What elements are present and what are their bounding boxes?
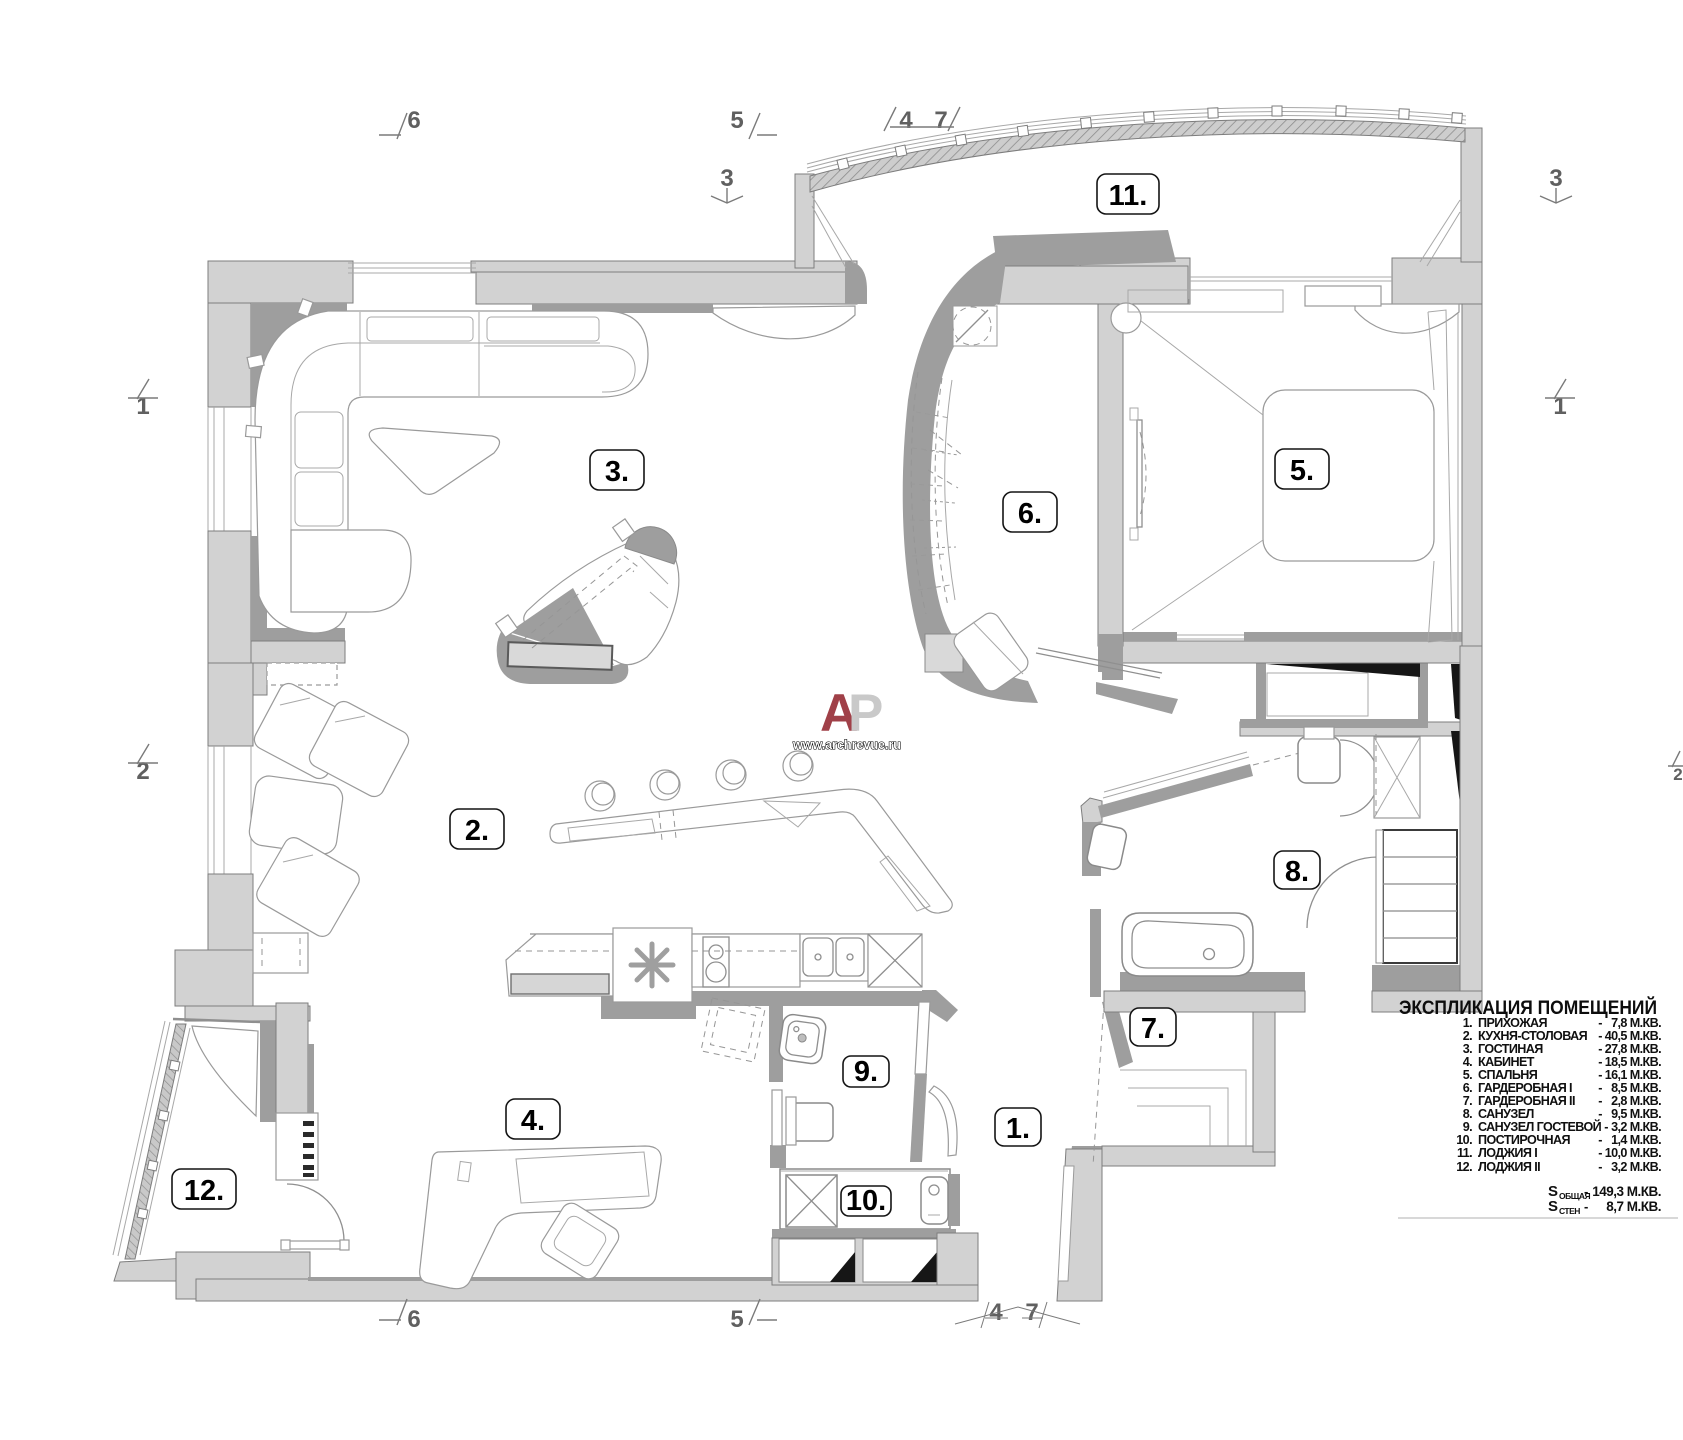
svg-text:3.: 3. [1463,1042,1472,1056]
svg-text:ПРИХОЖАЯ: ПРИХОЖАЯ [1478,1016,1547,1030]
svg-text:149,3 М.КВ.: 149,3 М.КВ. [1592,1184,1661,1199]
svg-text:8,7 М.КВ.: 8,7 М.КВ. [1606,1199,1661,1214]
svg-text:-: - [1598,1029,1602,1043]
svg-text:8.: 8. [1285,856,1309,888]
svg-text:САНУЗЕЛ: САНУЗЕЛ [1478,1107,1534,1121]
svg-text:8.: 8. [1463,1107,1472,1121]
svg-text:4.: 4. [521,1105,545,1137]
svg-text:4: 4 [899,107,913,134]
svg-text:8,5 М.КВ.: 8,5 М.КВ. [1611,1081,1661,1095]
svg-text:1.: 1. [1463,1016,1472,1030]
svg-text:-: - [1598,1055,1602,1069]
svg-text:7.: 7. [1463,1094,1472,1108]
svg-text:2: 2 [1673,765,1682,784]
svg-text:2,8 М.КВ.: 2,8 М.КВ. [1611,1094,1661,1108]
svg-text:-: - [1598,1042,1602,1056]
svg-text:СПАЛЬНЯ: СПАЛЬНЯ [1478,1068,1538,1082]
svg-text:ГАРДЕРОБНАЯ II: ГАРДЕРОБНАЯ II [1478,1094,1575,1108]
svg-text:КАБИНЕТ: КАБИНЕТ [1478,1055,1535,1069]
svg-text:3: 3 [720,165,733,192]
svg-text:4.: 4. [1463,1055,1472,1069]
svg-text:-: - [1598,1133,1602,1147]
svg-text:P: P [848,684,883,743]
svg-text:-: - [1598,1094,1602,1108]
svg-text:16,1 М.КВ.: 16,1 М.КВ. [1605,1068,1661,1082]
svg-text:1,4 М.КВ.: 1,4 М.КВ. [1611,1133,1661,1147]
svg-text:9.: 9. [854,1056,878,1088]
svg-text:САНУЗЕЛ ГОСТЕВОЙ: САНУЗЕЛ ГОСТЕВОЙ [1478,1119,1602,1134]
svg-text:7,8 М.КВ.: 7,8 М.КВ. [1611,1016,1661,1030]
svg-text:ПОСТИРОЧНАЯ: ПОСТИРОЧНАЯ [1478,1133,1570,1147]
svg-text:-: - [1598,1081,1602,1095]
svg-text:СТЕН: СТЕН [1559,1206,1580,1216]
svg-text:7.: 7. [1141,1013,1165,1045]
svg-text:2.: 2. [465,815,489,847]
svg-text:3,2 М.КВ.: 3,2 М.КВ. [1611,1160,1661,1174]
svg-text:3.: 3. [605,456,629,488]
svg-text:-: - [1598,1146,1602,1160]
svg-text:-: - [1598,1107,1602,1121]
svg-text:ЛОДЖИЯ II: ЛОДЖИЯ II [1478,1160,1540,1174]
svg-text:12.: 12. [1456,1160,1472,1174]
svg-text:-: - [1598,1016,1602,1030]
svg-text:1.: 1. [1006,1113,1030,1145]
svg-text:40,5 М.КВ.: 40,5 М.КВ. [1605,1029,1661,1043]
svg-text:27,8 М.КВ.: 27,8 М.КВ. [1605,1042,1661,1056]
svg-text:-: - [1598,1068,1602,1082]
svg-text:6.: 6. [1018,498,1042,530]
svg-text:2.: 2. [1463,1029,1472,1043]
svg-text:ГОСТИНАЯ: ГОСТИНАЯ [1478,1042,1543,1056]
svg-text:7: 7 [934,107,947,134]
svg-text:11.: 11. [1457,1146,1472,1160]
svg-text:6.: 6. [1463,1081,1472,1095]
svg-text:10,0 М.КВ.: 10,0 М.КВ. [1605,1146,1661,1160]
svg-text:10.: 10. [1456,1133,1472,1147]
svg-text:11.: 11. [1109,180,1148,212]
svg-text:5: 5 [730,107,743,134]
svg-text:-: - [1584,1184,1588,1199]
svg-text:5.: 5. [1290,455,1314,487]
svg-text:5: 5 [730,1306,743,1333]
svg-text:www.archrevue.ru: www.archrevue.ru [792,738,901,752]
svg-text:КУХНЯ-СТОЛОВАЯ: КУХНЯ-СТОЛОВАЯ [1478,1029,1588,1043]
svg-text:6: 6 [407,107,420,134]
svg-text:6: 6 [407,1306,420,1333]
svg-text:9.: 9. [1463,1120,1472,1134]
svg-text:12.: 12. [184,1175,224,1207]
svg-text:18,5 М.КВ.: 18,5 М.КВ. [1605,1055,1661,1069]
svg-text:3: 3 [1549,165,1562,192]
svg-text:-: - [1598,1160,1602,1174]
svg-text:ГАРДЕРОБНАЯ I: ГАРДЕРОБНАЯ I [1478,1081,1572,1095]
svg-text:5.: 5. [1463,1068,1472,1082]
svg-text:ЛОДЖИЯ I: ЛОДЖИЯ I [1478,1146,1537,1160]
svg-text:-: - [1584,1199,1588,1214]
svg-text:10.: 10. [846,1185,886,1217]
svg-text:9,5 М.КВ.: 9,5 М.КВ. [1611,1107,1661,1121]
svg-text:-: - [1604,1120,1608,1134]
svg-text:S: S [1548,1198,1558,1215]
svg-text:3,2 М.КВ.: 3,2 М.КВ. [1611,1120,1661,1134]
